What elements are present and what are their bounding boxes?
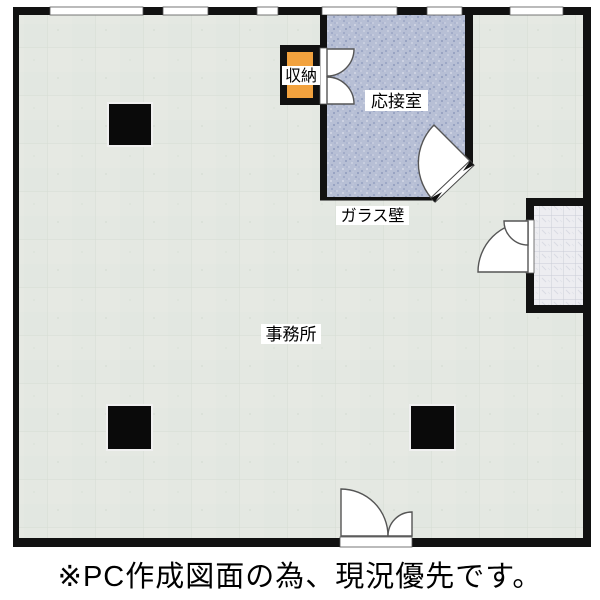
caption-note: ※PC作成図面の為、現況優先です。 <box>0 548 600 600</box>
glass-wall-label: ガラス壁 <box>341 206 405 225</box>
window-icon <box>50 7 143 15</box>
reception-label: 応接室 <box>371 92 422 111</box>
pillar <box>108 103 152 146</box>
window-icon <box>510 7 563 15</box>
window-icon <box>257 7 278 15</box>
floor-plan-drawing: 収納 応接室 ガラス壁 事務所 <box>0 0 600 548</box>
storage-label: 収納 <box>285 67 317 85</box>
window-icon <box>163 7 208 15</box>
window-icon <box>322 7 397 15</box>
office-label: 事務所 <box>266 325 317 344</box>
tiled-room-floor <box>530 202 587 309</box>
pillar <box>410 405 455 450</box>
floor-plan: 収納 応接室 ガラス壁 事務所 <box>0 0 600 548</box>
glass-wall-line <box>320 197 433 201</box>
pillar <box>107 405 152 450</box>
window-icon <box>427 7 462 15</box>
